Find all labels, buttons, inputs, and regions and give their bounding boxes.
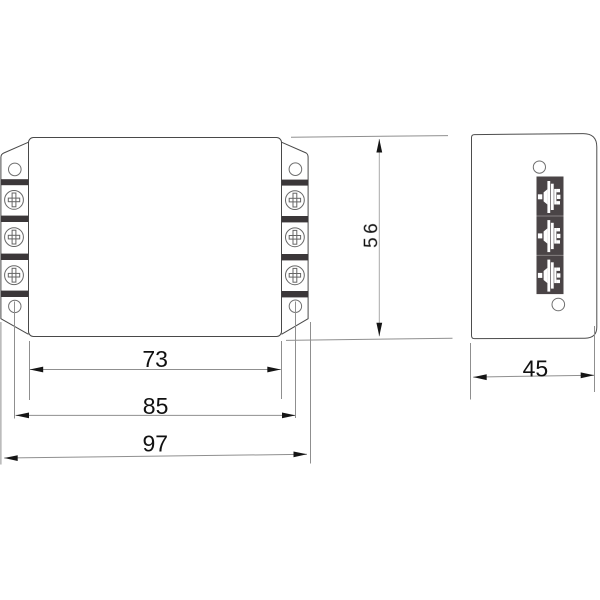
svg-text:73: 73 — [142, 346, 168, 372]
svg-text:56: 56 — [361, 220, 382, 248]
svg-text:97: 97 — [143, 431, 169, 457]
svg-text:85: 85 — [143, 393, 169, 419]
svg-text:45: 45 — [523, 355, 549, 381]
